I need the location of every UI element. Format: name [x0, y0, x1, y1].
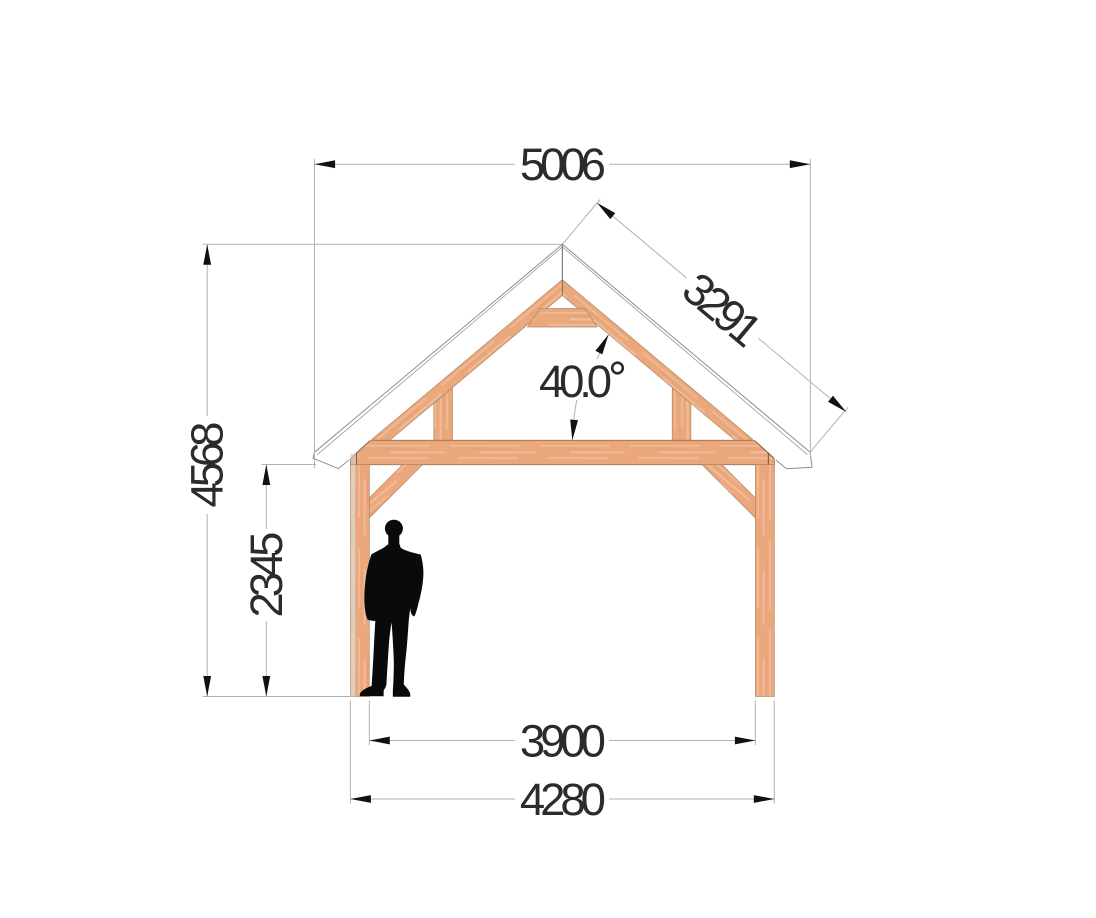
svg-text:3900: 3900 — [520, 715, 605, 766]
svg-text:40.0: 40.0 — [539, 356, 611, 407]
svg-text:2345: 2345 — [241, 533, 292, 618]
svg-text:4280: 4280 — [520, 774, 605, 825]
svg-text:5006: 5006 — [520, 139, 605, 190]
svg-text:4568: 4568 — [182, 423, 233, 508]
